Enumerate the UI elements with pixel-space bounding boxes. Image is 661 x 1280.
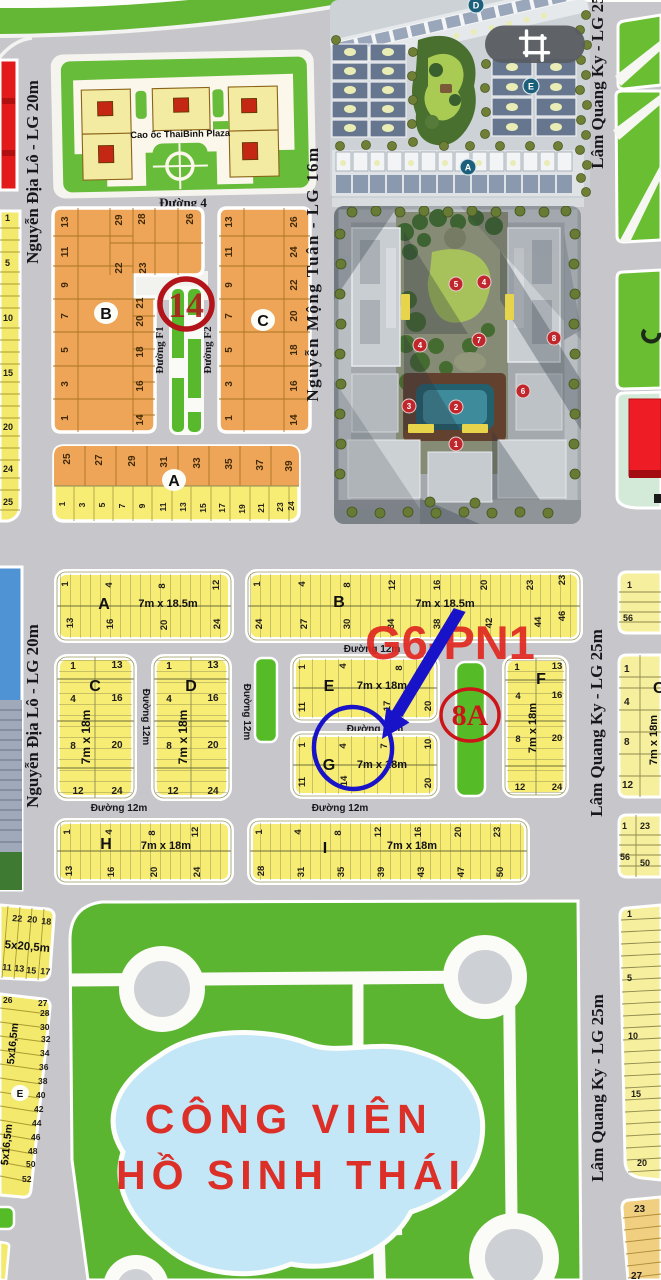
svg-text:9: 9	[60, 282, 71, 288]
svg-text:Đường 12m: Đường 12m	[140, 689, 151, 746]
svg-text:11: 11	[2, 962, 12, 973]
svg-text:Đường F2: Đường F2	[202, 326, 214, 374]
svg-text:8: 8	[157, 583, 168, 588]
svg-text:23: 23	[492, 827, 503, 838]
svg-text:12: 12	[622, 780, 634, 791]
svg-text:D: D	[185, 678, 197, 695]
svg-text:23: 23	[525, 580, 536, 591]
svg-text:4: 4	[482, 278, 487, 287]
svg-text:1: 1	[624, 664, 630, 675]
svg-text:A: A	[168, 473, 180, 490]
svg-text:23: 23	[640, 821, 650, 831]
svg-text:16: 16	[552, 690, 563, 701]
svg-text:Lâm Quang Ky - LG 25m: Lâm Quang Ky - LG 25m	[588, 0, 607, 169]
svg-text:18: 18	[135, 346, 146, 358]
svg-text:Đường 12m: Đường 12m	[91, 803, 148, 814]
svg-text:2: 2	[454, 403, 459, 412]
svg-text:12: 12	[387, 580, 398, 591]
svg-text:27: 27	[299, 619, 310, 630]
svg-text:47: 47	[456, 867, 467, 878]
svg-text:14: 14	[289, 414, 300, 426]
svg-text:27: 27	[94, 454, 105, 466]
svg-text:A: A	[98, 596, 110, 613]
svg-text:20: 20	[552, 733, 563, 744]
svg-text:3: 3	[407, 402, 412, 411]
svg-text:22: 22	[289, 279, 300, 291]
svg-text:24: 24	[207, 786, 219, 797]
svg-text:24: 24	[3, 464, 13, 474]
svg-text:1: 1	[57, 501, 67, 506]
svg-text:1: 1	[60, 415, 71, 421]
svg-text:4: 4	[338, 743, 349, 749]
svg-text:16: 16	[111, 693, 123, 704]
svg-text:1: 1	[5, 213, 10, 223]
svg-text:44: 44	[32, 1118, 42, 1128]
svg-text:11: 11	[224, 246, 235, 257]
svg-text:20: 20	[27, 914, 38, 925]
svg-text:15: 15	[3, 368, 13, 378]
svg-text:24: 24	[254, 618, 265, 629]
svg-text:43: 43	[416, 867, 427, 878]
svg-text:7m x 18m: 7m x 18m	[141, 840, 191, 852]
svg-text:20: 20	[637, 1158, 647, 1168]
svg-text:C: C	[257, 313, 269, 330]
svg-text:7m x 18m: 7m x 18m	[648, 715, 660, 765]
svg-text:12: 12	[72, 786, 84, 797]
svg-text:10: 10	[423, 739, 434, 750]
svg-text:Lâm Quang Ky - LG 25m: Lâm Quang Ky - LG 25m	[587, 629, 606, 817]
svg-text:7: 7	[477, 336, 482, 345]
svg-text:1: 1	[297, 664, 308, 670]
svg-text:24: 24	[289, 246, 300, 258]
svg-text:20: 20	[423, 778, 434, 789]
svg-text:7m x 18.5m: 7m x 18.5m	[138, 598, 198, 610]
svg-text:CÔNG VIÊN: CÔNG VIÊN	[145, 1096, 434, 1142]
svg-text:Đường 12m: Đường 12m	[312, 803, 369, 814]
svg-text:36: 36	[39, 1062, 49, 1072]
svg-text:7m x 18m: 7m x 18m	[176, 710, 190, 765]
svg-text:1: 1	[60, 581, 71, 587]
svg-text:35: 35	[336, 866, 347, 877]
svg-text:24: 24	[552, 782, 563, 793]
svg-text:25: 25	[62, 453, 73, 465]
svg-text:7: 7	[224, 313, 235, 319]
svg-text:7: 7	[60, 313, 71, 319]
svg-text:1: 1	[166, 661, 172, 672]
svg-text:39: 39	[284, 460, 295, 472]
svg-text:24: 24	[212, 618, 223, 629]
svg-text:20: 20	[207, 740, 219, 751]
svg-text:8A: 8A	[452, 699, 489, 732]
svg-text:52: 52	[22, 1174, 32, 1184]
svg-text:23: 23	[557, 575, 568, 586]
svg-text:7m x 18.5m: 7m x 18.5m	[415, 598, 475, 610]
svg-text:15: 15	[631, 1089, 641, 1099]
svg-text:A: A	[465, 163, 472, 173]
svg-text:32: 32	[41, 1034, 51, 1044]
svg-text:20: 20	[159, 620, 170, 631]
svg-text:56: 56	[623, 613, 633, 623]
svg-text:7: 7	[379, 743, 390, 748]
svg-text:4: 4	[297, 581, 308, 587]
svg-text:8: 8	[333, 830, 344, 835]
svg-text:Đường F1: Đường F1	[154, 326, 166, 373]
svg-text:20: 20	[423, 701, 434, 712]
svg-text:27: 27	[631, 1271, 643, 1280]
svg-text:15: 15	[26, 965, 37, 976]
svg-text:9: 9	[224, 282, 235, 288]
svg-text:27: 27	[38, 998, 48, 1008]
svg-text:F: F	[536, 671, 546, 688]
svg-text:50: 50	[26, 1159, 36, 1169]
svg-text:B: B	[100, 306, 112, 323]
svg-text:13: 13	[64, 866, 75, 877]
svg-text:13: 13	[224, 216, 235, 228]
svg-text:33: 33	[192, 457, 203, 469]
svg-text:20: 20	[111, 740, 123, 751]
svg-text:8: 8	[166, 741, 172, 752]
svg-text:11: 11	[297, 701, 308, 712]
svg-text:20: 20	[453, 827, 464, 838]
svg-text:13: 13	[14, 963, 25, 974]
svg-text:13: 13	[178, 502, 188, 512]
svg-text:26: 26	[185, 213, 196, 225]
svg-text:28: 28	[40, 1008, 50, 1018]
svg-text:1: 1	[627, 580, 632, 590]
svg-text:7: 7	[117, 503, 127, 508]
svg-text:18: 18	[289, 344, 300, 356]
svg-text:14: 14	[168, 285, 204, 325]
svg-text:46: 46	[557, 611, 568, 622]
svg-text:1: 1	[454, 440, 459, 449]
svg-text:8: 8	[624, 737, 630, 748]
svg-text:20: 20	[135, 315, 146, 327]
svg-text:E: E	[17, 1089, 24, 1100]
svg-text:5: 5	[97, 502, 107, 507]
svg-text:4: 4	[624, 697, 630, 708]
svg-text:16: 16	[413, 827, 424, 838]
svg-text:H: H	[100, 836, 112, 853]
svg-text:20: 20	[479, 580, 490, 591]
svg-text:7m x 18m: 7m x 18m	[79, 710, 93, 765]
svg-text:56: 56	[620, 852, 630, 862]
svg-text:1: 1	[70, 661, 76, 672]
svg-text:5: 5	[60, 347, 71, 353]
svg-text:16: 16	[207, 693, 219, 704]
svg-text:23: 23	[138, 262, 149, 274]
svg-text:12: 12	[211, 580, 222, 591]
svg-text:C: C	[653, 680, 661, 697]
svg-text:8: 8	[552, 334, 557, 343]
svg-text:20: 20	[3, 422, 13, 432]
svg-text:25: 25	[3, 497, 13, 507]
svg-text:12: 12	[515, 782, 526, 793]
svg-text:7m x 18m: 7m x 18m	[357, 759, 407, 771]
svg-text:46: 46	[31, 1132, 41, 1142]
svg-text:Nguyễn Địa Lô - LG 20m: Nguyễn Địa Lô - LG 20m	[23, 624, 42, 808]
svg-text:17: 17	[40, 966, 51, 977]
svg-text:4: 4	[515, 691, 521, 702]
svg-text:23: 23	[634, 1204, 646, 1215]
svg-text:13: 13	[207, 660, 219, 671]
svg-text:1: 1	[254, 829, 265, 835]
svg-text:17: 17	[217, 503, 227, 513]
svg-text:3: 3	[60, 381, 71, 387]
svg-text:8: 8	[515, 734, 520, 745]
svg-text:23: 23	[275, 502, 285, 512]
svg-text:4: 4	[70, 694, 76, 705]
svg-text:7m x 18m: 7m x 18m	[387, 840, 437, 852]
svg-text:15: 15	[198, 503, 208, 513]
svg-text:5: 5	[454, 280, 459, 289]
svg-text:4: 4	[166, 694, 172, 705]
svg-text:30: 30	[40, 1022, 50, 1032]
svg-text:18: 18	[41, 916, 52, 927]
svg-text:24: 24	[192, 866, 203, 877]
svg-text:30: 30	[342, 619, 353, 630]
svg-text:50: 50	[640, 858, 650, 868]
svg-text:1: 1	[622, 821, 627, 831]
svg-text:31: 31	[159, 456, 170, 468]
svg-text:4: 4	[418, 341, 423, 350]
svg-text:22: 22	[114, 262, 125, 274]
svg-text:16: 16	[289, 380, 300, 392]
svg-text:5: 5	[5, 258, 10, 268]
svg-text:37: 37	[255, 459, 266, 471]
svg-text:1: 1	[62, 829, 73, 835]
svg-text:3: 3	[77, 502, 87, 507]
svg-text:9: 9	[137, 503, 147, 508]
svg-text:50: 50	[495, 867, 506, 878]
svg-text:5: 5	[627, 973, 632, 983]
svg-text:1: 1	[224, 415, 235, 421]
svg-text:14: 14	[135, 414, 146, 426]
svg-text:35: 35	[224, 458, 235, 470]
svg-text:I: I	[323, 840, 327, 857]
svg-text:28: 28	[137, 213, 148, 225]
svg-text:Đường 12m: Đường 12m	[241, 684, 252, 741]
svg-text:HỒ SINH THÁI: HỒ SINH THÁI	[116, 1152, 466, 1198]
svg-text:13: 13	[65, 618, 76, 629]
svg-text:26: 26	[3, 995, 13, 1005]
svg-text:1: 1	[627, 909, 632, 919]
svg-text:8: 8	[147, 830, 158, 835]
svg-text:7m x 18m: 7m x 18m	[357, 680, 407, 692]
svg-text:10: 10	[628, 1031, 638, 1041]
svg-text:16: 16	[106, 867, 117, 878]
svg-text:12: 12	[373, 827, 384, 838]
svg-text:13: 13	[111, 660, 123, 671]
svg-text:12: 12	[167, 786, 179, 797]
svg-text:11: 11	[297, 776, 308, 787]
svg-text:39: 39	[376, 867, 387, 878]
svg-text:13: 13	[60, 216, 71, 228]
svg-text:4: 4	[338, 663, 349, 669]
svg-text:29: 29	[127, 455, 138, 467]
svg-text:48: 48	[28, 1146, 38, 1156]
svg-text:12: 12	[190, 827, 201, 838]
svg-text:C: C	[89, 678, 101, 695]
svg-text:16: 16	[135, 380, 146, 392]
svg-text:20: 20	[149, 867, 160, 878]
svg-text:Cao ốc ThaiBinh Plaza: Cao ốc ThaiBinh Plaza	[130, 128, 231, 140]
svg-text:31: 31	[296, 866, 307, 877]
svg-text:B: B	[333, 594, 345, 611]
svg-text:1: 1	[252, 581, 263, 587]
svg-text:40: 40	[36, 1090, 46, 1100]
svg-text:E: E	[324, 678, 335, 695]
svg-text:26: 26	[289, 216, 300, 228]
svg-text:4: 4	[104, 829, 115, 835]
svg-text:D: D	[473, 1, 480, 11]
svg-text:42: 42	[34, 1104, 44, 1114]
svg-text:G: G	[323, 757, 335, 774]
svg-text:Nguyễn Mộng Tuân - LG 16m: Nguyễn Mộng Tuân - LG 16m	[303, 146, 322, 401]
svg-text:11: 11	[158, 502, 168, 511]
svg-text:6: 6	[521, 387, 526, 396]
svg-text:19: 19	[237, 504, 247, 514]
svg-text:4: 4	[104, 582, 115, 588]
svg-text:24: 24	[286, 501, 296, 511]
svg-text:21: 21	[256, 503, 266, 513]
svg-text:8: 8	[342, 582, 353, 587]
svg-text:11: 11	[60, 246, 71, 257]
svg-text:8: 8	[70, 741, 76, 752]
svg-text:16: 16	[432, 580, 443, 591]
svg-text:3: 3	[224, 381, 235, 387]
svg-text:28: 28	[256, 866, 267, 877]
svg-text:10: 10	[3, 313, 13, 323]
svg-text:5: 5	[224, 347, 235, 353]
svg-text:21: 21	[135, 297, 146, 309]
svg-text:22: 22	[12, 913, 23, 924]
svg-text:E: E	[528, 82, 534, 92]
svg-text:38: 38	[38, 1076, 48, 1086]
svg-text:7m x 18m: 7m x 18m	[527, 703, 539, 753]
svg-text:29: 29	[114, 214, 125, 226]
svg-text:4: 4	[293, 829, 304, 835]
svg-text:34: 34	[40, 1048, 50, 1058]
svg-text:1: 1	[297, 742, 308, 748]
svg-text:20: 20	[289, 310, 300, 322]
svg-text:13: 13	[552, 661, 563, 672]
svg-text:16: 16	[105, 619, 116, 630]
svg-text:Nguyễn Địa Lô - LG 20m: Nguyễn Địa Lô - LG 20m	[23, 80, 42, 264]
svg-text:24: 24	[111, 786, 123, 797]
svg-text:Lâm Quang Ky - LG 25m: Lâm Quang Ky - LG 25m	[588, 994, 607, 1182]
